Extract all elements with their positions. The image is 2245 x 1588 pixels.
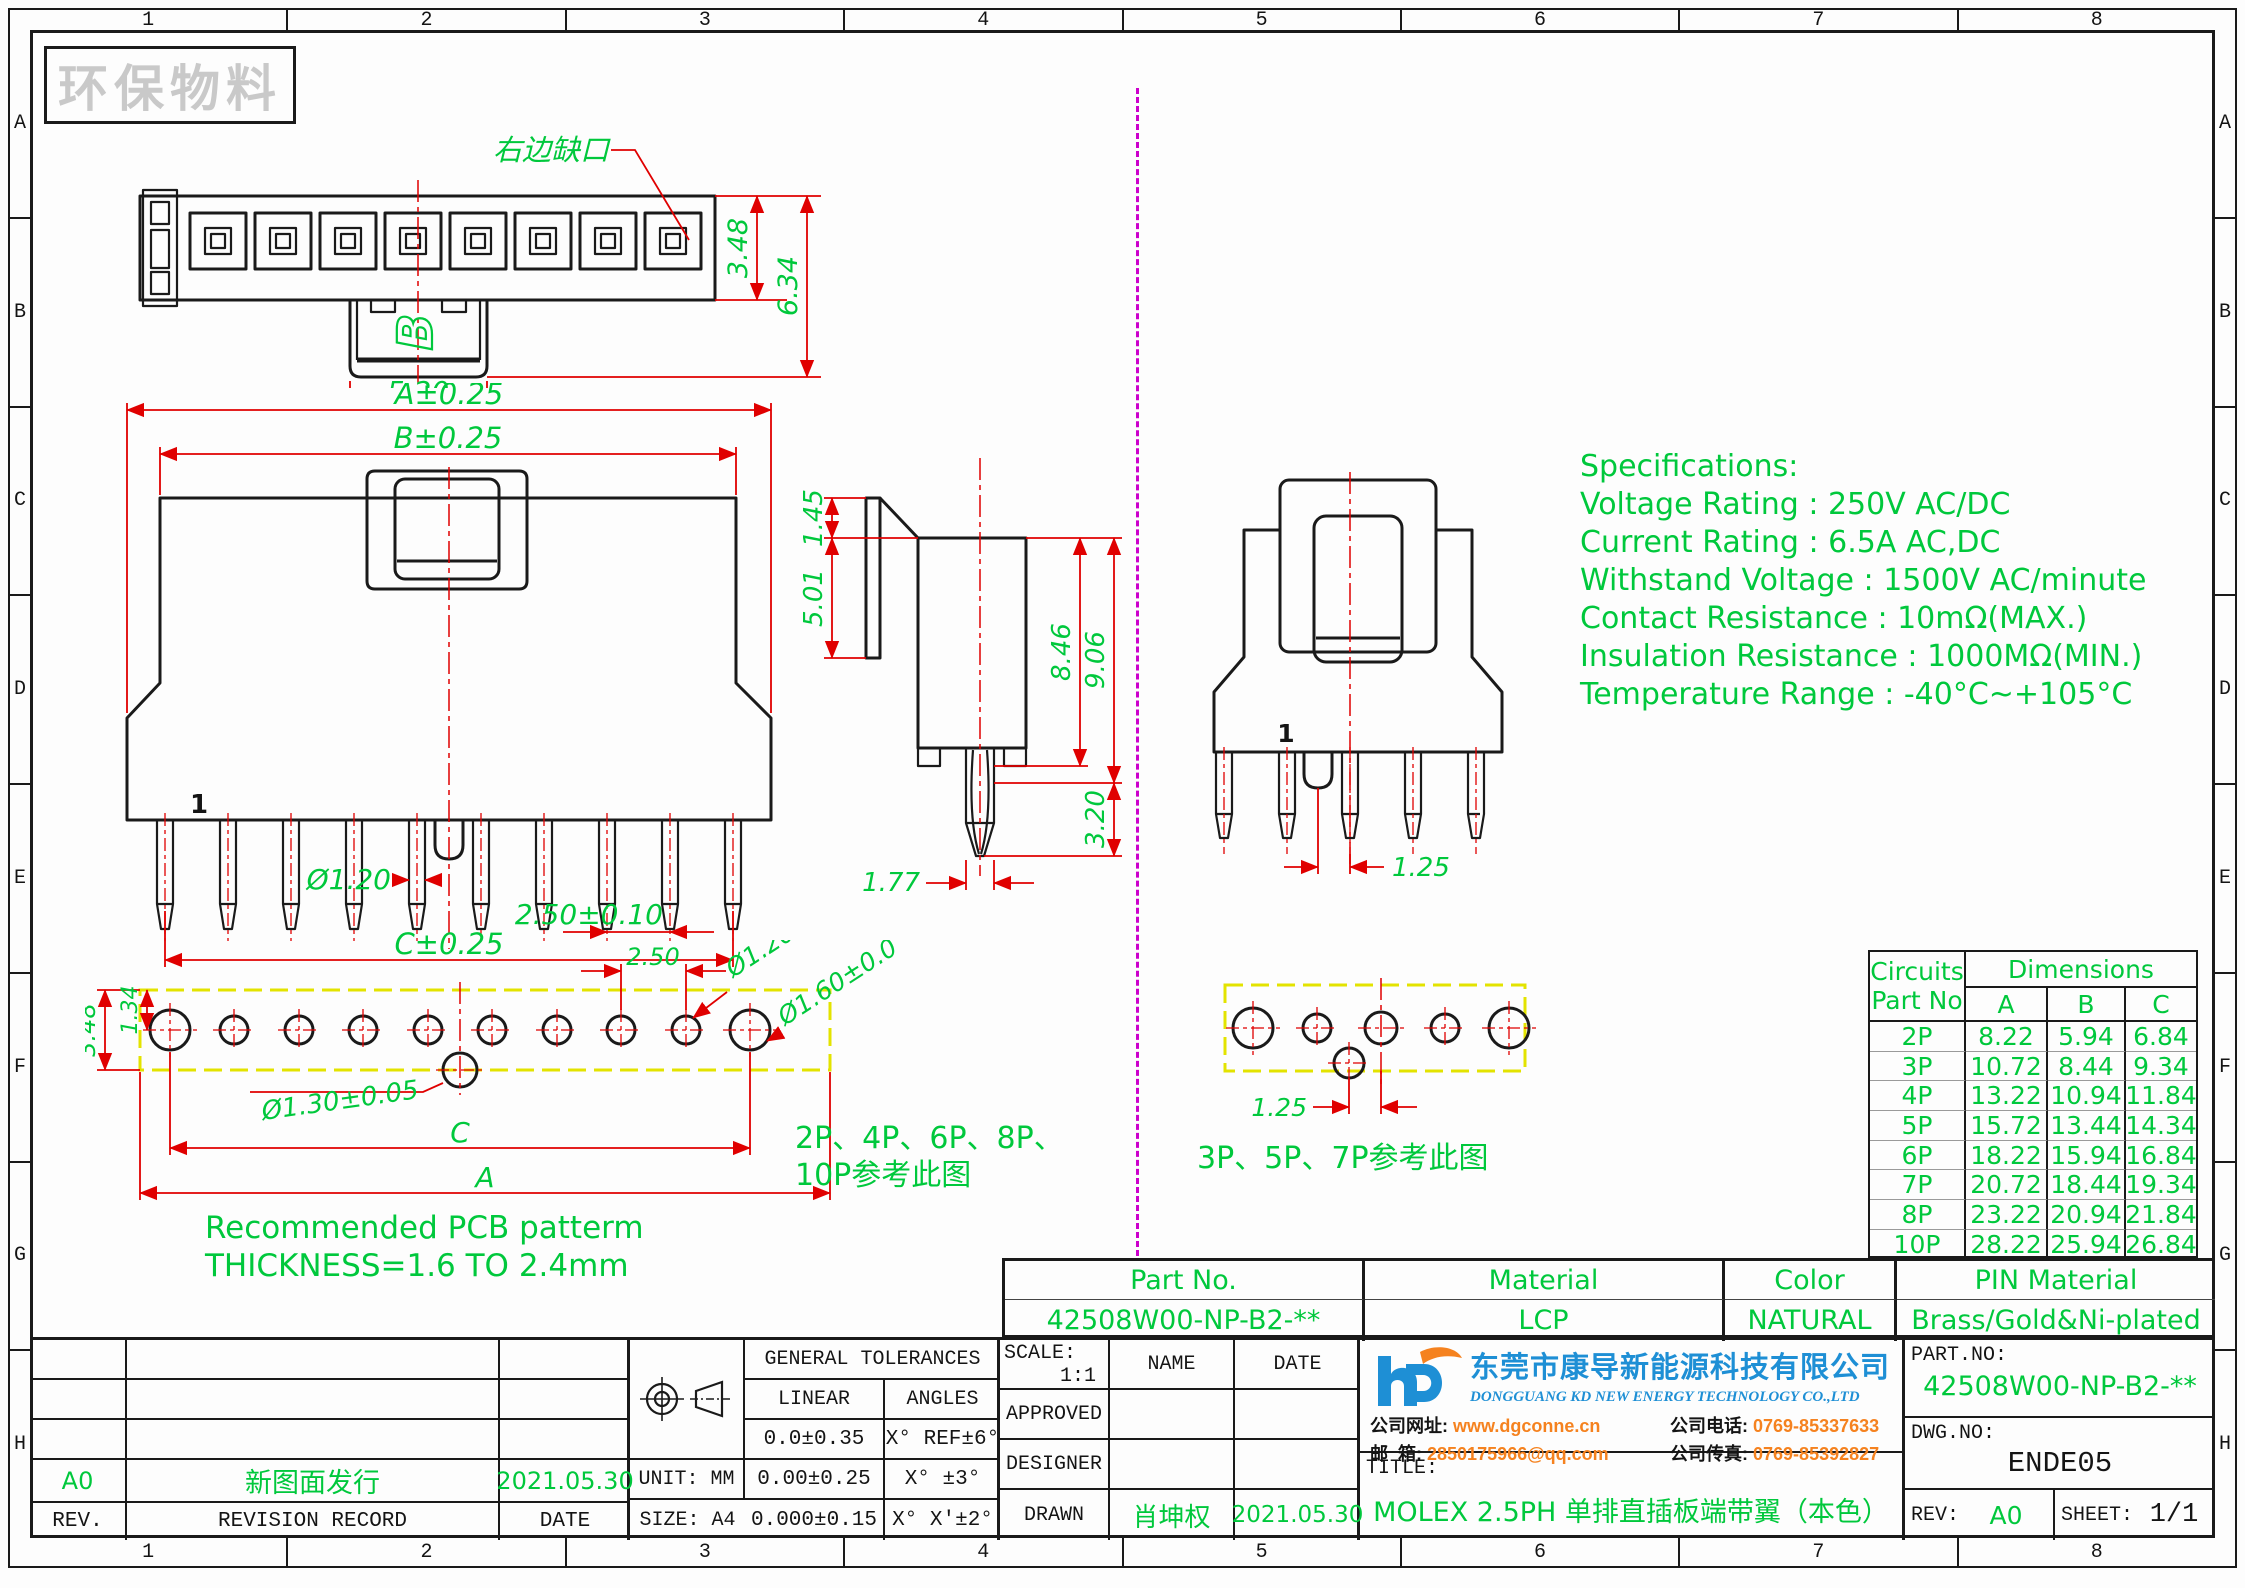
- spec-line: Temperature Range : -40°C~+105°C: [1580, 676, 2146, 714]
- partno-cell: PART.NO: 42508W00-NP-B2-**: [1905, 1340, 2215, 1418]
- title-value: MOLEX 2.5PH 单排直插板端带翼（本色）: [1360, 1490, 1902, 1529]
- cell-c: 26.84: [2126, 1230, 2196, 1260]
- company-name-cn: 东莞市康导新能源科技有限公司: [1470, 1344, 1890, 1386]
- col-label: 2: [288, 10, 566, 31]
- band-header-part: Part No.: [1005, 1261, 1365, 1300]
- tolerances-linear-header: LINEAR: [745, 1380, 885, 1420]
- sheet-value: 1/1: [2150, 1500, 2199, 1530]
- band-value-material: LCP: [1365, 1300, 1725, 1341]
- col-label: 1: [10, 1538, 288, 1566]
- col-label: 8: [1959, 1538, 2235, 1566]
- col-label: 4: [845, 10, 1123, 31]
- title-block: A0 新图面发行 2021.05.30 REV. REVISION RECORD…: [30, 1337, 2215, 1537]
- row-label: F: [10, 974, 30, 1163]
- row-labels-right: A B C D E F G H: [2215, 30, 2235, 1538]
- cell-part: 7P: [1870, 1170, 1966, 1200]
- size-label: SIZE: A4: [630, 1500, 745, 1540]
- band-header-pin: PIN Material: [1897, 1261, 2215, 1300]
- tolerances-block: UNIT: MM SIZE: A4 GENERAL TOLERANCES LIN…: [630, 1340, 1000, 1540]
- row-label: H: [10, 1351, 30, 1538]
- tolerances-angles-header: ANGLES: [885, 1380, 1000, 1420]
- partno-value: 42508W00-NP-B2-**: [1905, 1371, 2215, 1402]
- rev-cell: REV: A0: [1905, 1490, 2055, 1540]
- dim-hole-pitch: 2.50: [626, 943, 679, 971]
- revision-date-value: 2021.05.30: [500, 1460, 630, 1503]
- dim-body: 8.46: [1047, 623, 1077, 681]
- specs-title: Specifications:: [1580, 448, 2146, 486]
- sheet-cell: SHEET: 1/1: [2055, 1490, 2215, 1540]
- dim-a-span: A: [473, 1161, 494, 1194]
- revision-table: A0 新图面发行 2021.05.30 REV. REVISION RECORD…: [30, 1340, 630, 1540]
- drawn-label: DRAWN: [1000, 1490, 1110, 1540]
- dim-half-pitch: 1.25: [1251, 1093, 1307, 1122]
- company-logo: [1368, 1344, 1464, 1410]
- pcb-note-1: Recommended PCB patterm: [205, 1210, 644, 1246]
- spec-line: Withstand Voltage : 1500V AC/minute: [1580, 562, 2146, 600]
- cell-part: 6P: [1870, 1141, 1966, 1171]
- col-label: 1: [10, 10, 288, 31]
- tol-angle-2: X° ±3°: [885, 1460, 1000, 1500]
- band-value-pin: Brass/Gold&Ni-plated: [1897, 1300, 2215, 1341]
- col-label: 6: [1402, 1538, 1680, 1566]
- row-label: C: [10, 408, 30, 597]
- cell-b: 15.94: [2048, 1141, 2126, 1171]
- partno-label: PART.NO:: [1905, 1340, 2215, 1367]
- revision-header-date: DATE: [500, 1503, 630, 1540]
- dim-c-span: C: [450, 1116, 470, 1149]
- table-header-partno: Part No: [1871, 986, 1962, 1015]
- dim-total: 9.06: [1081, 631, 1111, 689]
- marker-b: B: [388, 314, 444, 351]
- company-name-en: DONGGUANG KD NEW ENERGY TECHNOLOGY CO.,L…: [1470, 1389, 1890, 1406]
- col-label: 4: [845, 1538, 1123, 1566]
- dwgno-value: ENDE05: [1905, 1447, 2215, 1480]
- cell-b: 10.94: [2048, 1081, 2126, 1111]
- tol-angle-3: X° X'±2°: [885, 1500, 1000, 1540]
- dim-pitch: 2.50±0.10: [515, 898, 663, 931]
- cell-part: 10P: [1870, 1230, 1966, 1260]
- company-block: 东莞市康导新能源科技有限公司 DONGGUANG KD NEW ENERGY T…: [1360, 1340, 2215, 1540]
- dim-row-offset: 1.34: [118, 986, 143, 1035]
- cell-part: 4P: [1870, 1081, 1966, 1111]
- dim-hole-mid: Ø1.30±0.05: [259, 1075, 421, 1127]
- table-header-dimensions: Dimensions: [1966, 952, 2196, 988]
- drawing-sheet: 1 2 3 4 5 6 7 8 1 2 3 4 5 6 7 8 A B C D …: [0, 0, 2245, 1588]
- cell-c: 14.34: [2126, 1111, 2196, 1141]
- row-label: A: [10, 30, 30, 219]
- dim-hole-large: Ø1.60±0.05: [772, 940, 895, 1032]
- col-label: 6: [1402, 10, 1680, 31]
- col-label: 3: [567, 1538, 845, 1566]
- pin-one-label: 1: [190, 790, 208, 820]
- cell-c: 21.84: [2126, 1200, 2196, 1230]
- company-info-cell: 东莞市康导新能源科技有限公司 DONGGUANG KD NEW ENERGY T…: [1360, 1340, 1905, 1453]
- row-label: F: [2215, 974, 2235, 1163]
- dim-half-pitch: 1.25: [1392, 853, 1450, 883]
- name-header: NAME: [1110, 1340, 1235, 1390]
- unit-label: UNIT: MM: [630, 1460, 745, 1500]
- col-label: 7: [1680, 1538, 1958, 1566]
- row-labels-left: A B C D E F G H: [10, 30, 30, 1538]
- part-material-band: Part No. Material Color PIN Material 425…: [1002, 1258, 2215, 1338]
- phone-label: 公司电话:: [1670, 1416, 1748, 1436]
- cell-a: 13.22: [1966, 1081, 2048, 1111]
- spec-line: Voltage Rating : 250V AC/DC: [1580, 486, 2146, 524]
- cell-a: 15.72: [1966, 1111, 2048, 1141]
- eco-watermark: 环保物料: [44, 46, 296, 124]
- col-label: 7: [1680, 10, 1958, 31]
- top-view-drawing: B 5.20 3.48 6.34 右边缺口: [95, 118, 875, 388]
- tol-angle-1: X° REF±6°: [885, 1420, 1000, 1460]
- tolerances-title: GENERAL TOLERANCES: [745, 1340, 1000, 1380]
- revision-rev-value: A0: [30, 1460, 127, 1503]
- dwgno-cell: DWG.NO: ENDE05: [1905, 1418, 2215, 1490]
- revision-record-value: 新图面发行: [127, 1460, 500, 1503]
- dim-height-upper: 3.48: [723, 218, 754, 278]
- cell-c: 11.84: [2126, 1081, 2196, 1111]
- cell-c: 16.84: [2126, 1141, 2196, 1171]
- sheet-label: SHEET:: [2055, 1504, 2133, 1527]
- phone-value: 0769-85337633: [1753, 1416, 1879, 1436]
- website-value: www.dgconne.cn: [1453, 1416, 1600, 1436]
- cell-a: 10.72: [1966, 1052, 2048, 1082]
- dim-a: A±0.25: [393, 383, 504, 411]
- cell-a: 18.22: [1966, 1141, 2048, 1171]
- pcb-even-ref: 2P、4P、6P、8P、 10P参考此图: [795, 1120, 1064, 1194]
- column-labels-top: 1 2 3 4 5 6 7 8: [10, 10, 2235, 31]
- cell-b: 13.44: [2048, 1111, 2126, 1141]
- third-angle-projection-icon: [634, 1368, 740, 1430]
- column-labels-bottom: 1 2 3 4 5 6 7 8: [10, 1538, 2235, 1566]
- revision-header-record: REVISION RECORD: [127, 1503, 500, 1540]
- pcb-note-2: THICKNESS=1.6 TO 2.4mm: [204, 1248, 629, 1284]
- cell-c: 9.34: [2126, 1052, 2196, 1082]
- date-header: DATE: [1235, 1340, 1360, 1390]
- scale-cell: SCALE: 1:1: [1000, 1340, 1110, 1390]
- drawn-name: 肖坤权: [1110, 1490, 1235, 1540]
- row-label: H: [2215, 1351, 2235, 1538]
- col-label: 5: [1124, 10, 1402, 31]
- front-view-odd-drawing: 1.25 1: [1192, 442, 1527, 902]
- specifications-block: Specifications: Voltage Rating : 250V AC…: [1580, 448, 2146, 714]
- projection-symbol-cell: [630, 1340, 745, 1460]
- cell-c: 6.84: [2126, 1022, 2196, 1052]
- row-label: E: [10, 785, 30, 974]
- tol-linear-2: 0.00±0.25: [745, 1460, 885, 1500]
- row-label: E: [2215, 785, 2235, 974]
- rev-value: A0: [1990, 1501, 2023, 1530]
- dim-height-total: 6.34: [773, 256, 804, 316]
- scale-value: 1:1: [1000, 1365, 1108, 1388]
- pcb-pattern-even-drawing: 3.48 1.34 2.50 Ø1.20±0.05 Ø1.60±0.05 Ø1.…: [85, 940, 895, 1295]
- revision-header-rev: REV.: [30, 1503, 127, 1540]
- row-label: A: [2215, 30, 2235, 219]
- dim-tip: 1.77: [862, 868, 920, 898]
- dwgno-label: DWG.NO:: [1905, 1418, 2215, 1445]
- band-header-material: Material: [1365, 1261, 1725, 1300]
- tol-linear-3: 0.000±0.15: [745, 1500, 885, 1540]
- circuits-dimensions-table: Circuits Part No Dimensions A B C 2P8.22…: [1868, 950, 2198, 1258]
- dim-b: B±0.25: [394, 421, 503, 455]
- ref-line: 10P参考此图: [795, 1157, 1064, 1194]
- ref-line: 2P、4P、6P、8P、: [795, 1120, 1064, 1157]
- cell-c: 19.34: [2126, 1170, 2196, 1200]
- row-label: D: [10, 596, 30, 785]
- dim-top: 1.45: [799, 489, 829, 547]
- row-label: B: [10, 219, 30, 408]
- front-view-drawing: A±0.25 B±0.25 Ø1.20 2.50±0.10 C±0.25 1: [95, 383, 805, 983]
- cell-a: 20.72: [1966, 1170, 2048, 1200]
- rev-label: REV:: [1905, 1504, 1959, 1527]
- table-header-circuits: Circuits: [1870, 957, 1964, 986]
- row-label: D: [2215, 596, 2235, 785]
- cell-b: 20.94: [2048, 1200, 2126, 1230]
- dim-row-height: 3.48: [85, 1003, 101, 1056]
- scale-label: SCALE:: [1000, 1340, 1108, 1365]
- row-label: C: [2215, 408, 2235, 597]
- website-label: 公司网址:: [1370, 1416, 1448, 1436]
- title-cell: TITLE: MOLEX 2.5PH 单排直插板端带翼（本色）: [1360, 1453, 1905, 1540]
- cell-a: 8.22: [1966, 1022, 2048, 1052]
- row-label: G: [2215, 1163, 2235, 1352]
- pcb-odd-ref: 3P、5P、7P参考此图: [1197, 1140, 1489, 1177]
- spec-line: Current Rating : 6.5A AC,DC: [1580, 524, 2146, 562]
- cell-b: 8.44: [2048, 1052, 2126, 1082]
- dim-face: 5.01: [799, 569, 829, 627]
- spec-line: Insulation Resistance : 1000MΩ(MIN.): [1580, 638, 2146, 676]
- spec-line: Contact Resistance : 10mΩ(MAX.): [1580, 600, 2146, 638]
- band-value-color: NATURAL: [1725, 1300, 1897, 1341]
- approval-block: SCALE: 1:1 NAME DATE APPROVED DESIGNER D…: [1000, 1340, 1360, 1540]
- side-view-drawing: 1.45 5.01 8.46 9.06 3.20 1.77: [790, 398, 1145, 903]
- dim-pin-dia: Ø1.20: [306, 863, 391, 896]
- cell-part: 2P: [1870, 1022, 1966, 1052]
- dim-pin-len: 3.20: [1081, 790, 1111, 848]
- pin-one-label: 1: [1277, 719, 1294, 748]
- band-header-color: Color: [1725, 1261, 1897, 1300]
- cell-part: 8P: [1870, 1200, 1966, 1230]
- cell-b: 25.94: [2048, 1230, 2126, 1260]
- col-label: 3: [567, 10, 845, 31]
- tol-linear-1: 0.0±0.35: [745, 1420, 885, 1460]
- table-header-c: C: [2126, 988, 2196, 1022]
- title-label: TITLE:: [1360, 1453, 1902, 1480]
- designer-label: DESIGNER: [1000, 1440, 1110, 1490]
- approved-label: APPROVED: [1000, 1390, 1110, 1440]
- col-label: 8: [1959, 10, 2235, 31]
- notch-label: 右边缺口: [493, 133, 611, 167]
- cell-b: 18.44: [2048, 1170, 2126, 1200]
- band-value-part: 42508W00-NP-B2-**: [1005, 1300, 1365, 1341]
- cell-part: 3P: [1870, 1052, 1966, 1082]
- col-label: 2: [288, 1538, 566, 1566]
- cell-a: 28.22: [1966, 1230, 2048, 1260]
- row-label: G: [10, 1163, 30, 1352]
- col-label: 5: [1124, 1538, 1402, 1566]
- cavity-row: [190, 213, 701, 269]
- drawn-date: 2021.05.30: [1235, 1490, 1360, 1540]
- row-label: B: [2215, 219, 2235, 408]
- cell-b: 5.94: [2048, 1022, 2126, 1052]
- table-header-a: A: [1966, 988, 2048, 1022]
- cell-part: 5P: [1870, 1111, 1966, 1141]
- table-header-b: B: [2048, 988, 2126, 1022]
- cell-a: 23.22: [1966, 1200, 2048, 1230]
